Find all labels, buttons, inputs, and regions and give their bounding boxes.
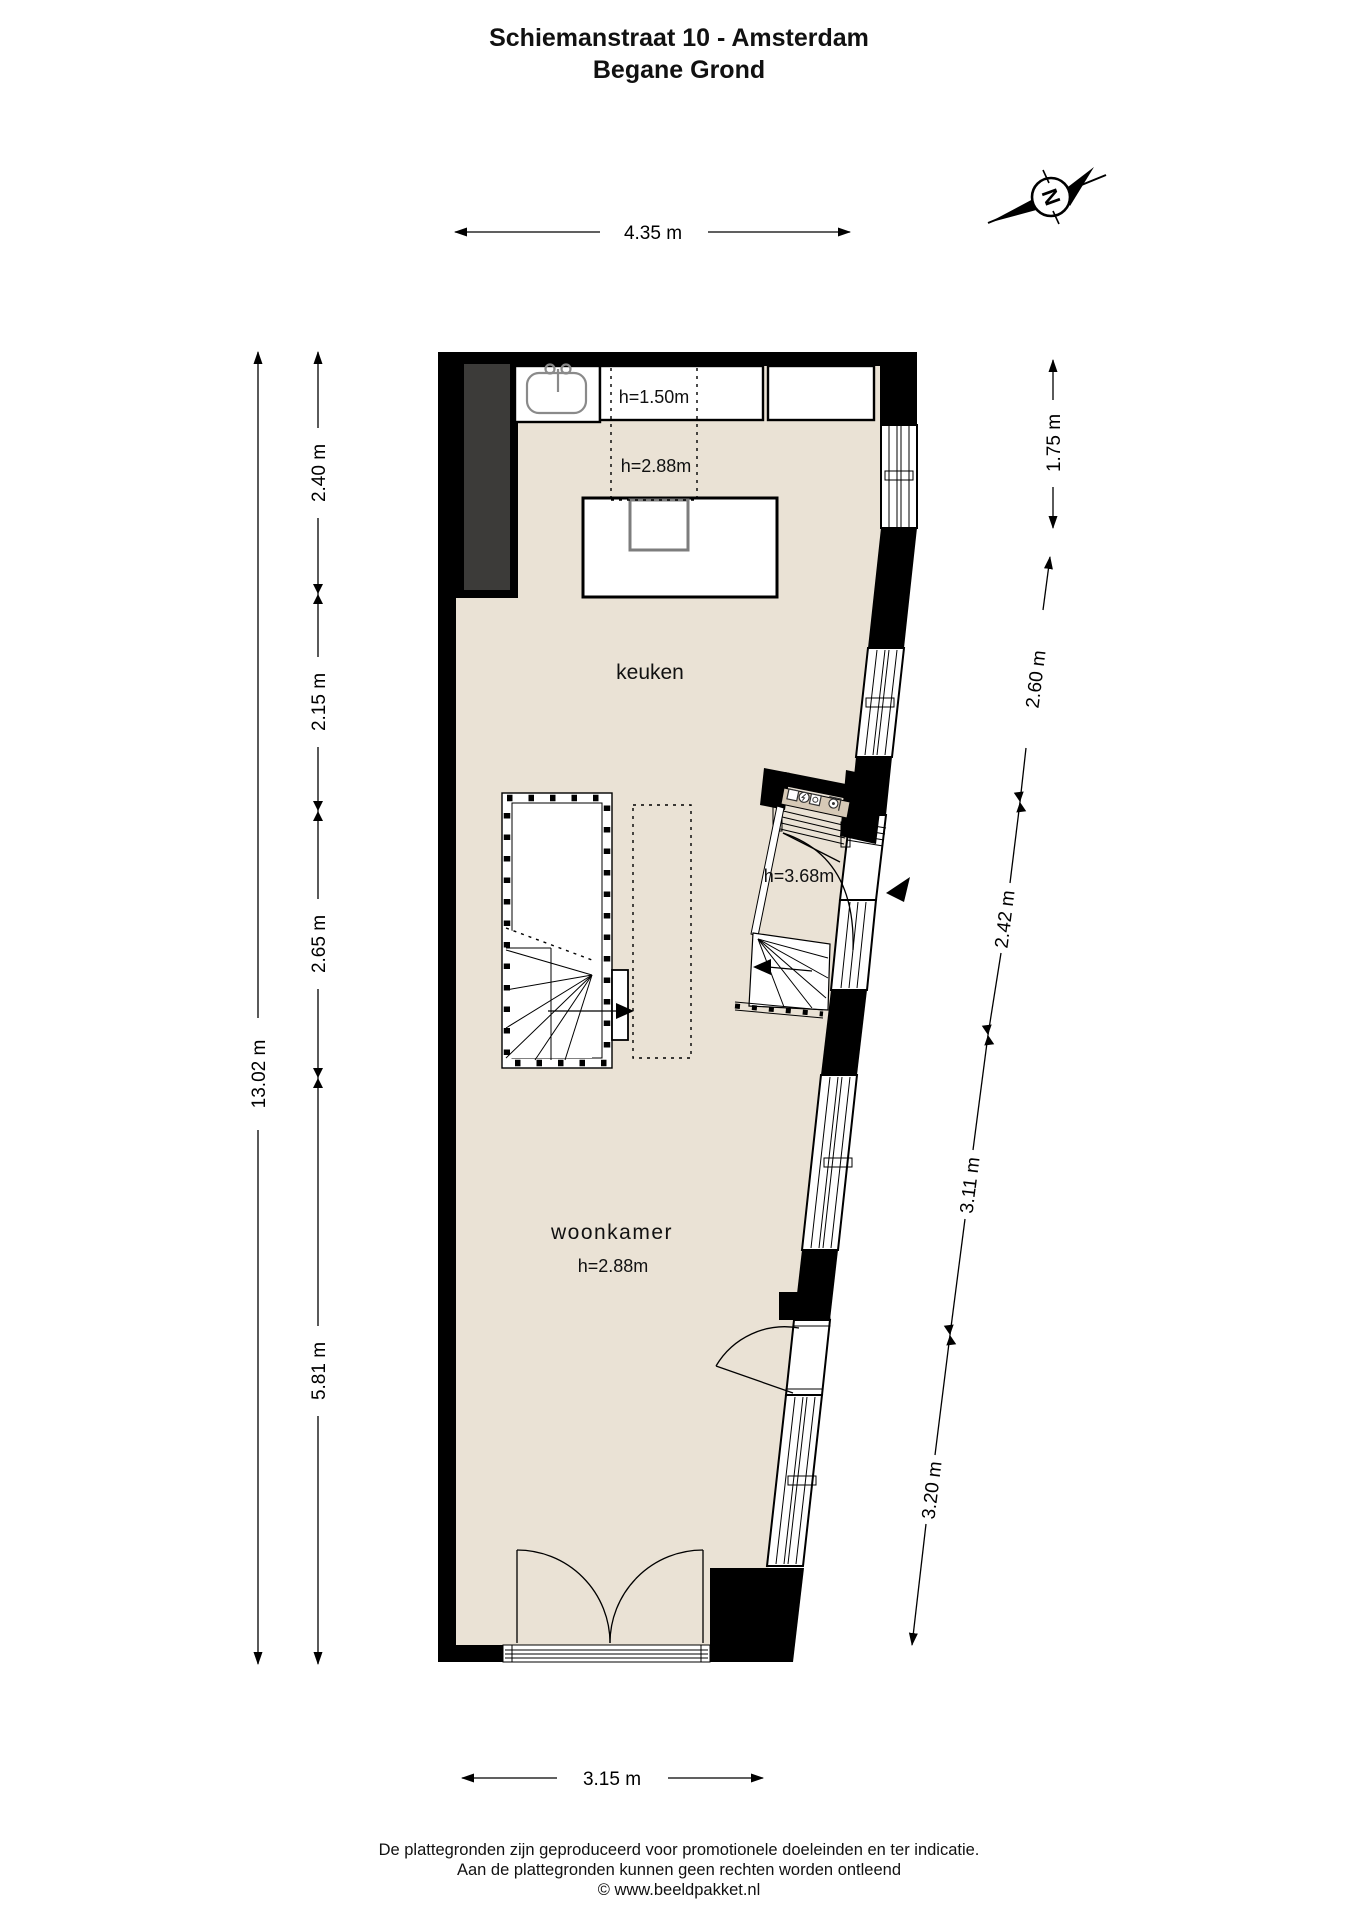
disclaimer: De plattegronden zijn geproduceerd voor … [0,1840,1358,1900]
floorplan-page: Schiemanstraat 10 - Amsterdam Begane Gro… [0,0,1358,1920]
room-label-keuken: keuken [616,661,684,684]
compass-icon: N [988,167,1106,224]
dim-right-top: 1.75 m [1044,414,1065,472]
disclaimer-credit: © www.beeldpakket.nl [0,1880,1358,1900]
dim-bottom: 3.15 m [583,1769,641,1790]
dim-left-2: 2.15 m [309,673,330,731]
disclaimer-line2: Aan de plattegronden kunnen geen rechten… [0,1860,1358,1880]
dim-left-1: 2.40 m [309,444,330,502]
dim-top: 4.35 m [624,223,682,244]
floorplan-drawing: keuken woonkamer h=1.50m h=2.88m h=3.68m… [0,0,1358,1920]
room-label-woonkamer: woonkamer [550,1221,673,1244]
closet [456,356,518,598]
dim-left-4: 5.81 m [309,1342,330,1400]
hob-icon [630,500,688,550]
dim-right-1: 2.60 m [1022,649,1050,709]
height-label-entrance: h=3.68m [764,866,835,886]
height-label-kitchen: h=2.88m [621,456,692,476]
dim-right-4: 3.20 m [918,1460,946,1520]
entrance-arrow-icon [886,877,910,902]
height-label-counter: h=1.50m [619,387,690,407]
height-label-woonkamer: h=2.88m [578,1256,649,1276]
dim-right-3: 3.11 m [957,1156,985,1215]
disclaimer-line1: De plattegronden zijn geproduceerd voor … [0,1840,1358,1860]
dim-right-2: 2.42 m [991,889,1019,949]
dim-left-3: 2.65 m [309,915,330,973]
dim-left-total: 13.02 m [249,1040,270,1109]
